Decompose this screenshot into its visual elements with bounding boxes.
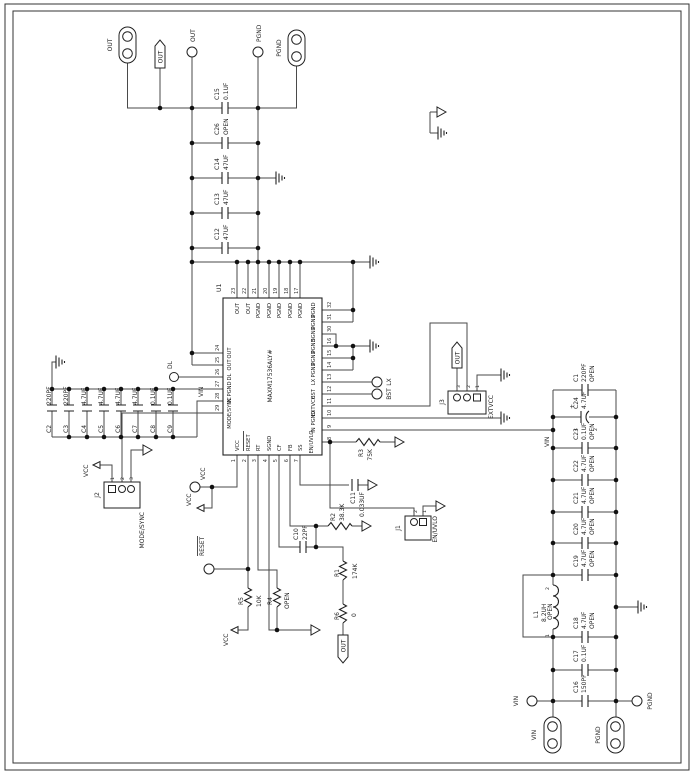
pin-name: FB bbox=[288, 444, 294, 451]
cap-value: 4.7UF bbox=[132, 387, 139, 405]
board-connectors bbox=[119, 27, 624, 753]
pin-number: 17 bbox=[294, 288, 300, 294]
testpoint-lx bbox=[372, 377, 382, 387]
pin-number: 16 bbox=[327, 338, 333, 344]
pin-name: PGND bbox=[227, 381, 233, 396]
cap-name: C21 bbox=[573, 492, 580, 504]
pin-number: 25 bbox=[215, 357, 221, 363]
cap-name: C26 bbox=[214, 123, 221, 135]
pin-number: 4 bbox=[263, 459, 269, 462]
pin-number: 3 bbox=[252, 459, 258, 462]
connector-pgnd-2 bbox=[607, 717, 624, 753]
pgnd-symbol bbox=[370, 256, 379, 269]
testpoint-dl bbox=[170, 373, 179, 382]
pin-number: 31 bbox=[327, 314, 333, 320]
r4-value: OPEN bbox=[284, 592, 291, 609]
cap-value: 4.7UF bbox=[115, 387, 122, 405]
pin-name: LX bbox=[311, 378, 317, 385]
capacitor-c11 bbox=[352, 479, 358, 491]
cap-value: 4.7UF bbox=[581, 517, 588, 535]
cap-name: C14 bbox=[214, 158, 221, 170]
pin-number: 1 bbox=[231, 459, 237, 462]
conn-vin-label: VIN bbox=[531, 730, 538, 740]
conn-out-label: OUT bbox=[107, 38, 114, 51]
dl-label: DL bbox=[167, 360, 174, 369]
l1-pin1: 1 bbox=[545, 634, 551, 637]
testpoint-out bbox=[187, 47, 197, 57]
jumper-j1 bbox=[405, 516, 431, 540]
pin-number: 15 bbox=[327, 350, 333, 356]
pin-name: PGND bbox=[311, 362, 317, 377]
testpoint-reset bbox=[204, 564, 214, 574]
j3-refdes: J3 bbox=[439, 399, 446, 406]
gnd-arrow bbox=[311, 625, 320, 635]
cap-value: 0.1UF bbox=[223, 82, 230, 100]
net-tags bbox=[155, 40, 462, 663]
c11-value: 0.033UF bbox=[359, 491, 366, 517]
r5-name: R5 bbox=[238, 597, 245, 605]
gnd-arrow bbox=[362, 521, 371, 531]
pin-number: 23 bbox=[231, 288, 237, 294]
vcc-arrow bbox=[93, 462, 100, 469]
r6-value: 0 bbox=[351, 613, 358, 617]
gnd-arrow bbox=[368, 480, 377, 490]
pin-number: 28 bbox=[215, 393, 221, 399]
cap-name: C15 bbox=[214, 88, 221, 100]
pgnd-symbol bbox=[501, 369, 510, 382]
pin-name: PGND bbox=[311, 410, 317, 425]
j3-pin-number: 3 bbox=[456, 385, 462, 388]
vcc-arrow-label: VCC bbox=[186, 494, 193, 506]
tp-reset-label: RESET bbox=[199, 536, 206, 556]
pin-number: 32 bbox=[327, 302, 333, 308]
pgnd-symbol bbox=[370, 340, 379, 353]
gnd-arrow bbox=[436, 501, 445, 511]
r2-value: 38.3K bbox=[339, 503, 346, 521]
r3-name: R3 bbox=[358, 449, 365, 457]
connector-out bbox=[119, 27, 136, 63]
r2-name: R2 bbox=[330, 513, 337, 521]
connector-pgnd bbox=[288, 30, 305, 66]
cap-name: C19 bbox=[573, 555, 580, 567]
j3-pin-number: 1 bbox=[475, 385, 481, 388]
pin-name: RESET bbox=[246, 434, 252, 451]
vcc-arrow bbox=[231, 627, 238, 634]
pin-name: OUT bbox=[227, 347, 233, 359]
cap-name: C6 bbox=[115, 425, 122, 433]
resistor-r3 bbox=[356, 439, 380, 446]
labels: OUT OUT OUT PGND PGND C15 0.1UF C26 OPEN… bbox=[46, 24, 654, 743]
pin-number: 8 bbox=[327, 437, 333, 440]
cap-value: 4.7UF bbox=[581, 611, 588, 629]
cap-name: C5 bbox=[98, 425, 105, 433]
jumper-j2 bbox=[104, 482, 140, 508]
resistor-r4 bbox=[274, 588, 281, 607]
cap-name: C18 bbox=[573, 617, 580, 629]
cap-value: 4.7UF bbox=[581, 391, 588, 409]
testpoint-pgnd2 bbox=[632, 696, 642, 706]
cap-name: C8 bbox=[150, 425, 157, 433]
pin-name: PGND bbox=[267, 303, 273, 318]
connector-vin bbox=[544, 717, 561, 753]
vcc-arrow-label: VCC bbox=[223, 634, 230, 646]
cap-name: C9 bbox=[167, 425, 174, 433]
pin-number: 14 bbox=[327, 362, 333, 368]
cap-name: C4 bbox=[81, 425, 88, 433]
cap-name: C7 bbox=[132, 425, 139, 433]
tp-vin-label: VIN bbox=[513, 696, 520, 706]
cap-name: C1 bbox=[573, 374, 580, 382]
pin-name: PGND bbox=[277, 303, 283, 318]
gnd-arrow bbox=[395, 437, 404, 447]
j1-label: EN/UVLO bbox=[432, 516, 439, 543]
cap-note: OPEN bbox=[589, 365, 596, 382]
cap-note: OPEN bbox=[589, 518, 596, 535]
j2-pin-number: 2 bbox=[120, 477, 126, 480]
testpoint-pgnd bbox=[253, 47, 263, 57]
conn-pgnd-label: PGND bbox=[276, 39, 283, 57]
gnd-arrow bbox=[143, 445, 152, 455]
j2-pin-number: 1 bbox=[110, 477, 116, 480]
pin-name: OUT bbox=[235, 302, 241, 314]
pin-number: 18 bbox=[284, 288, 290, 294]
schematic-canvas: OUT OUT OUT PGND PGND C15 0.1UF C26 OPEN… bbox=[0, 0, 694, 775]
c10-value: 22PF bbox=[302, 525, 309, 540]
cap-name: C17 bbox=[573, 650, 580, 662]
pin-number: 2 bbox=[242, 459, 248, 462]
pin-number: 27 bbox=[215, 381, 221, 387]
cap-name: C20 bbox=[573, 523, 580, 535]
pin-name: OUT bbox=[227, 359, 233, 371]
cap-value: 4.7UF bbox=[581, 549, 588, 567]
pin-name: PGND bbox=[298, 303, 304, 318]
cap-value: 220PF bbox=[46, 386, 53, 405]
pgnd-symbol bbox=[276, 172, 285, 185]
testpoint-bst bbox=[372, 389, 382, 399]
cap-value: OPEN bbox=[223, 118, 230, 135]
cap-name: C22 bbox=[573, 460, 580, 472]
pin-name: RT bbox=[256, 444, 262, 451]
c11-name: C11 bbox=[350, 492, 357, 504]
c10-name: C10 bbox=[293, 528, 300, 540]
ic-part-number: MAXM17536ALY# bbox=[267, 350, 274, 403]
tp-pgnd-label: PGND bbox=[647, 692, 654, 710]
resistor-r5 bbox=[245, 588, 252, 607]
cap-value: 220PF bbox=[581, 363, 588, 382]
pin-name: MODE/SYNC bbox=[227, 397, 233, 429]
pin-name: PGND bbox=[288, 303, 294, 318]
jumper-j3 bbox=[448, 391, 486, 414]
cap-value: 0.1UF bbox=[167, 387, 174, 405]
j3-pin-number: 2 bbox=[466, 385, 472, 388]
pin-number: 9 bbox=[327, 425, 333, 428]
pin-number: 24 bbox=[215, 345, 221, 351]
cap-value: 4.7UF bbox=[581, 454, 588, 472]
r3-value: 75K bbox=[367, 448, 374, 461]
pin-name: CF bbox=[277, 444, 283, 451]
out-tag-label: OUT bbox=[455, 351, 462, 364]
pin-name: PGND bbox=[256, 303, 262, 318]
cap-name: C24 bbox=[573, 397, 580, 409]
cap-value: 0.1UF bbox=[581, 644, 588, 662]
cap-value: 4.7UF bbox=[81, 387, 88, 405]
j3-label: EXTVCC bbox=[488, 395, 495, 419]
cap-value: 47UF bbox=[223, 224, 230, 240]
cap-value: 4.7UF bbox=[581, 486, 588, 504]
cap-name: C13 bbox=[214, 193, 221, 205]
tp-vcc-label: VCC bbox=[200, 468, 207, 480]
out-tag-label: OUT bbox=[158, 50, 165, 63]
cap-name: C23 bbox=[573, 428, 580, 440]
l1-name: L1 bbox=[533, 611, 540, 618]
pin-name: EN/UVLO bbox=[309, 430, 315, 453]
cap-value: 150PF bbox=[581, 674, 588, 693]
schematic-page: OUT OUT OUT PGND PGND C15 0.1UF C26 OPEN… bbox=[0, 0, 694, 775]
out-tag-label: OUT bbox=[341, 639, 348, 652]
cap-value: 47UF bbox=[223, 189, 230, 205]
r1-value: 174K bbox=[352, 563, 359, 579]
pin-number: 26 bbox=[215, 369, 221, 375]
cap-value: 0.1UF bbox=[150, 387, 157, 405]
pin-number: 7 bbox=[294, 459, 300, 462]
pin-number: 21 bbox=[252, 288, 258, 294]
pin-number: 10 bbox=[327, 410, 333, 416]
cap-name: C12 bbox=[214, 228, 221, 240]
conn-pgnd-label: PGND bbox=[595, 726, 602, 744]
capacitor-symbols-small bbox=[300, 479, 358, 553]
cap-note: OPEN bbox=[589, 550, 596, 567]
tp-out-label: OUT bbox=[190, 29, 197, 42]
pin-number: 5 bbox=[273, 459, 279, 462]
cap-value: 4.7UF bbox=[98, 387, 105, 405]
cap-value: 0.1UF bbox=[581, 422, 588, 440]
capacitor-c10 bbox=[300, 541, 306, 553]
resistor-symbols bbox=[245, 439, 381, 624]
pgnd-symbol bbox=[501, 412, 510, 425]
cap-name: C16 bbox=[573, 681, 580, 693]
gnd-arrow bbox=[437, 107, 446, 117]
cap-note: OPEN bbox=[589, 612, 596, 629]
pin-number: 29 bbox=[215, 405, 221, 411]
lx-label: LX bbox=[386, 378, 393, 385]
vin-rail-label: VIN bbox=[544, 437, 551, 447]
cap-value: 47UF bbox=[223, 154, 230, 170]
l1-pin2: 2 bbox=[545, 587, 551, 590]
cap-note: OPEN bbox=[589, 423, 596, 440]
pin-number: 20 bbox=[263, 288, 269, 294]
j2-refdes: J2 bbox=[94, 492, 101, 499]
cap-name: C3 bbox=[63, 425, 70, 433]
pin-number: 19 bbox=[273, 288, 279, 294]
pin-name: DL bbox=[227, 373, 233, 380]
pgnd-symbol bbox=[638, 601, 647, 614]
resistor-r2 bbox=[328, 523, 352, 530]
pgnd-symbol bbox=[56, 356, 65, 369]
polarized-plate bbox=[586, 411, 589, 423]
pin-number: 13 bbox=[327, 374, 333, 380]
testpoints bbox=[170, 47, 643, 706]
pin-number: 12 bbox=[327, 386, 333, 392]
ic-refdes: U1 bbox=[216, 283, 223, 292]
testpoint-vcc bbox=[190, 482, 200, 492]
j2-pin-number: 3 bbox=[129, 477, 135, 480]
vcc-label: VCC bbox=[83, 465, 90, 477]
pin-name: SS bbox=[298, 444, 304, 451]
j2-label: MODE/SYNC bbox=[139, 512, 146, 548]
l1-note: OPEN bbox=[547, 603, 554, 620]
pin-number: 30 bbox=[327, 326, 333, 332]
j1-pin-number: 1 bbox=[422, 510, 428, 513]
j1-refdes: J1 bbox=[395, 525, 402, 532]
vcc-arrow bbox=[197, 505, 204, 512]
vin-net-label: VIN bbox=[198, 387, 205, 397]
testpoint-vin bbox=[527, 696, 537, 706]
pin-number: 22 bbox=[242, 288, 248, 294]
bst-label: BST bbox=[386, 388, 393, 400]
pin-number: 11 bbox=[327, 398, 333, 404]
cap-value: 220PF bbox=[63, 386, 70, 405]
r6-name: R6 bbox=[334, 612, 341, 620]
pin-name: VCC bbox=[235, 440, 241, 451]
pin-name: OUT bbox=[246, 302, 252, 314]
cap-note: OPEN bbox=[589, 487, 596, 504]
j1-pin-number: 2 bbox=[413, 510, 419, 513]
pin-name: SGND bbox=[267, 436, 273, 451]
r5-value: 10K bbox=[256, 594, 263, 607]
cap-name: C2 bbox=[46, 425, 53, 433]
r4-name: R4 bbox=[267, 597, 274, 605]
tp-pgnd-label: PGND bbox=[256, 24, 263, 42]
cap-note: OPEN bbox=[589, 455, 596, 472]
pin-number: 6 bbox=[284, 459, 290, 462]
r1-name: R1 bbox=[334, 569, 341, 577]
pgnd-symbol bbox=[438, 127, 447, 140]
